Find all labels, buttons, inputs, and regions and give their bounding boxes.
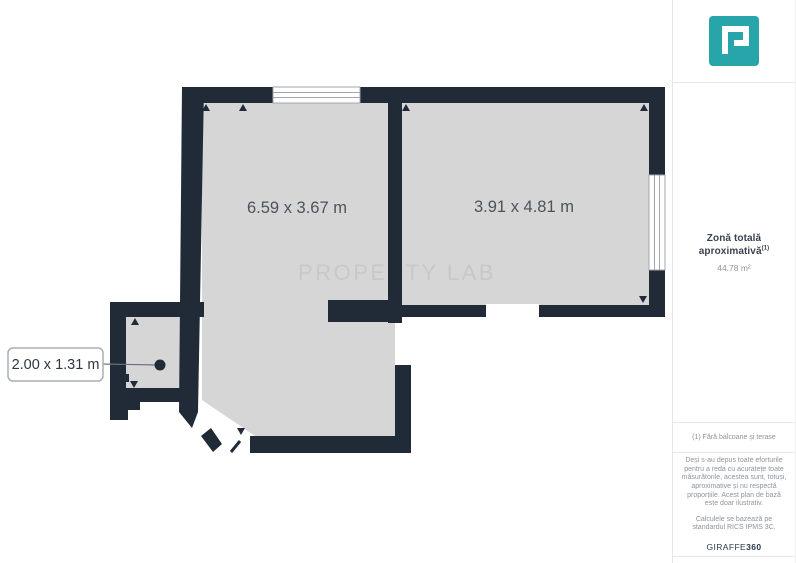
footnote-text: (1) Fără balcoane și terase: [673, 423, 795, 453]
wall-left: [179, 87, 204, 428]
brand-suffix: 360: [746, 542, 761, 552]
total-area-value: 44.78 m²: [717, 263, 751, 273]
total-area-label: Zonă totală aproximativă(1): [679, 232, 789, 258]
door-opening-room2: [486, 304, 539, 318]
wall-small-step2: [110, 395, 128, 420]
door-swing-tick: [231, 441, 240, 452]
floorplan-page: PROPERTY LAB: [0, 0, 796, 563]
logo-section: [673, 0, 795, 83]
dimension-arrow: [237, 428, 245, 435]
info-sidebar: Zonă totală aproximativă(1) 44.78 m² (1)…: [672, 0, 796, 563]
disclaimer-text: Deși s-au depus toate eforturile pentru …: [681, 457, 787, 508]
giraffe360-brand: GIRAFFE360: [706, 542, 761, 552]
total-area-label-text: Zonă totală aproximativă: [699, 233, 762, 257]
wall-stub: [328, 300, 402, 322]
property-lab-logo-icon: [709, 16, 759, 66]
wall-top: [183, 87, 665, 103]
window-top: [273, 87, 360, 103]
leader-dot: [155, 360, 166, 371]
floorplan-canvas: PROPERTY LAB: [0, 0, 672, 563]
total-area-footnote-ref: (1): [762, 246, 770, 252]
wall-partition: [388, 87, 402, 323]
total-area-section: Zonă totală aproximativă(1) 44.78 m²: [673, 83, 795, 423]
standard-text: Calculele se bazează pe standardul RICS …: [681, 516, 787, 533]
wall-door-stub: [201, 428, 222, 452]
window-right: [649, 175, 665, 270]
legal-section: Deși s-au depus toate eforturile pentru …: [673, 453, 795, 557]
room-3-dimension-label: 2.00 x 1.31 m: [12, 357, 100, 373]
wall-bottom-room1: [250, 436, 411, 453]
room-2-dimension-label: 3.91 x 4.81 m: [474, 198, 574, 216]
logo-svg: [709, 16, 759, 66]
door-hinge-mark: [124, 374, 129, 382]
room-1-dimension-label: 6.59 x 3.67 m: [247, 199, 347, 217]
brand-name: GIRAFFE: [706, 542, 746, 552]
